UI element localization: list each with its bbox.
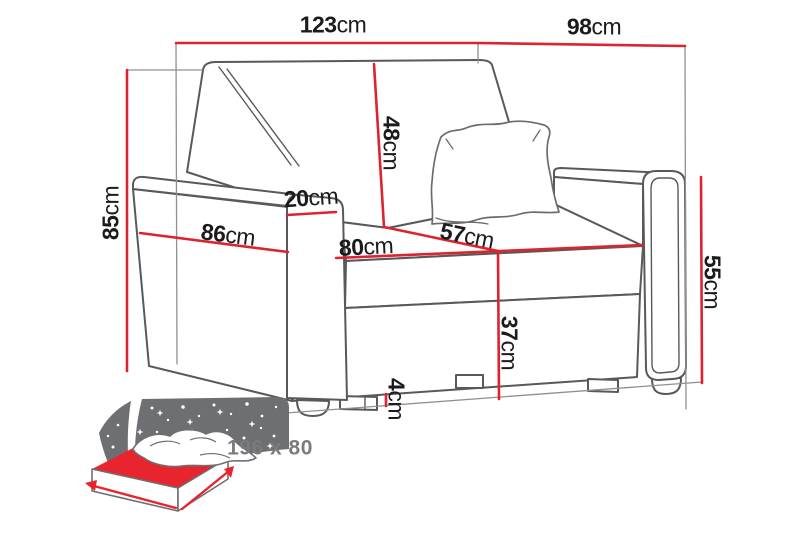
dim-backrest-height: 48cm: [380, 116, 403, 170]
dim-total-depth: 98cm: [567, 16, 621, 39]
dim-seat-height: 37cm: [498, 316, 521, 370]
dim-total-width: 123cm: [300, 14, 367, 37]
sofa-dimension-diagram: 123cm 98cm 85cm 48cm 20cm 86cm 80cm 57cm…: [0, 0, 800, 533]
dim-armrest-width: 20cm: [283, 185, 339, 212]
sofa-line-drawing: [0, 0, 800, 533]
dim-armrest-height: 55cm: [701, 255, 724, 309]
sleeping-size-label: 196 x 80: [227, 438, 313, 459]
dim-leg-height: 4cm: [385, 378, 408, 420]
dim-seat-width: 80cm: [338, 234, 393, 260]
pillow-drawing: [431, 121, 559, 224]
dim-total-height: 85cm: [100, 186, 123, 240]
